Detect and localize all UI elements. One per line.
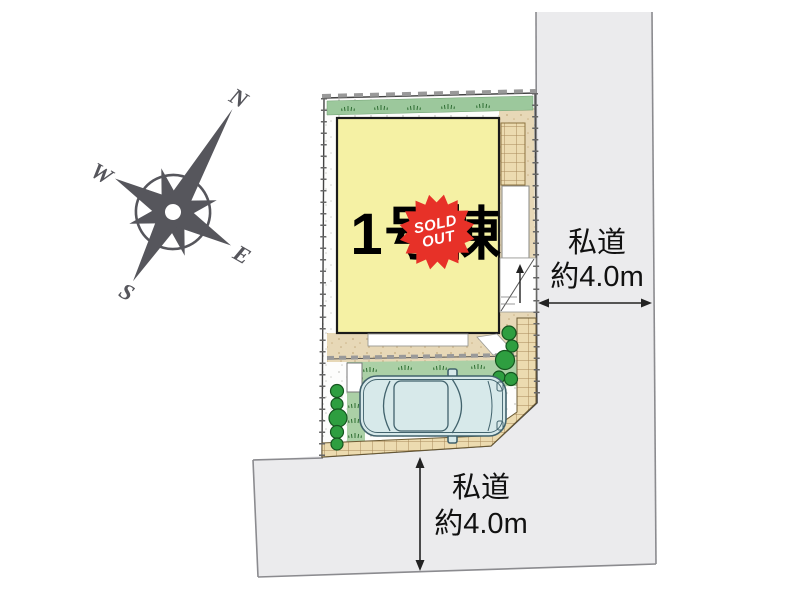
- site-plan-drawing: N S E W: [0, 0, 800, 600]
- road-east-type: 私道: [537, 226, 657, 260]
- east-terrace-bricks: [501, 123, 525, 185]
- road-east-label: 私道 約4.0m: [537, 226, 657, 294]
- entrance-porch: [502, 186, 529, 258]
- car-top-view: [360, 369, 506, 443]
- road-east-width: 約4.0m: [537, 260, 657, 294]
- road-south-width: 約4.0m: [420, 506, 542, 542]
- road-south-type: 私道: [420, 470, 542, 506]
- compass-cardinal-star: [75, 75, 291, 314]
- utility-box: [347, 363, 362, 392]
- compass-letter-east: E: [228, 240, 255, 270]
- road-south-label: 私道 約4.0m: [420, 470, 542, 542]
- compass-letter-north: N: [224, 83, 253, 114]
- compass-letter-south: S: [115, 278, 139, 306]
- compass-letter-west: W: [86, 158, 118, 191]
- site-plan-page: N S E W 1号棟 SOLD OUT 私道 約4.0m 私道 約4.0m: [0, 0, 800, 600]
- compass-rose: N S E W: [41, 42, 321, 348]
- south-step: [368, 334, 468, 346]
